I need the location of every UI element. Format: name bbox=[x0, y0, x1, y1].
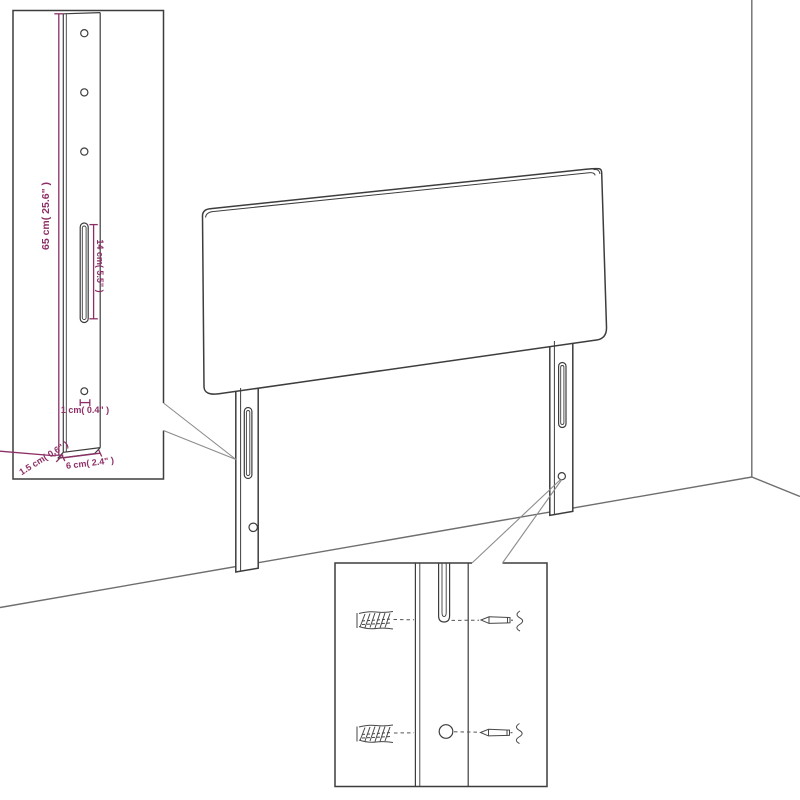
headboard-leg-right bbox=[550, 338, 573, 515]
leg-detail-callout-lower bbox=[164, 431, 237, 460]
mounting-detail-callout-right bbox=[503, 480, 562, 564]
leg-detail-inset bbox=[0, 11, 164, 480]
inset-box-fill bbox=[335, 563, 547, 787]
mounting-detail-callout-left bbox=[472, 480, 561, 564]
headboard-panel bbox=[203, 169, 607, 395]
mounting-detail-inset bbox=[335, 563, 547, 787]
leg-detail-callout-upper bbox=[164, 403, 237, 460]
callout-lines bbox=[164, 403, 562, 563]
diagram-canvas: 65 cm( 25.6" ) 14 cm( 5.5" ) 1 cm( 0.4" … bbox=[0, 0, 800, 800]
headboard bbox=[203, 169, 607, 572]
headboard-diagram bbox=[0, 0, 800, 800]
